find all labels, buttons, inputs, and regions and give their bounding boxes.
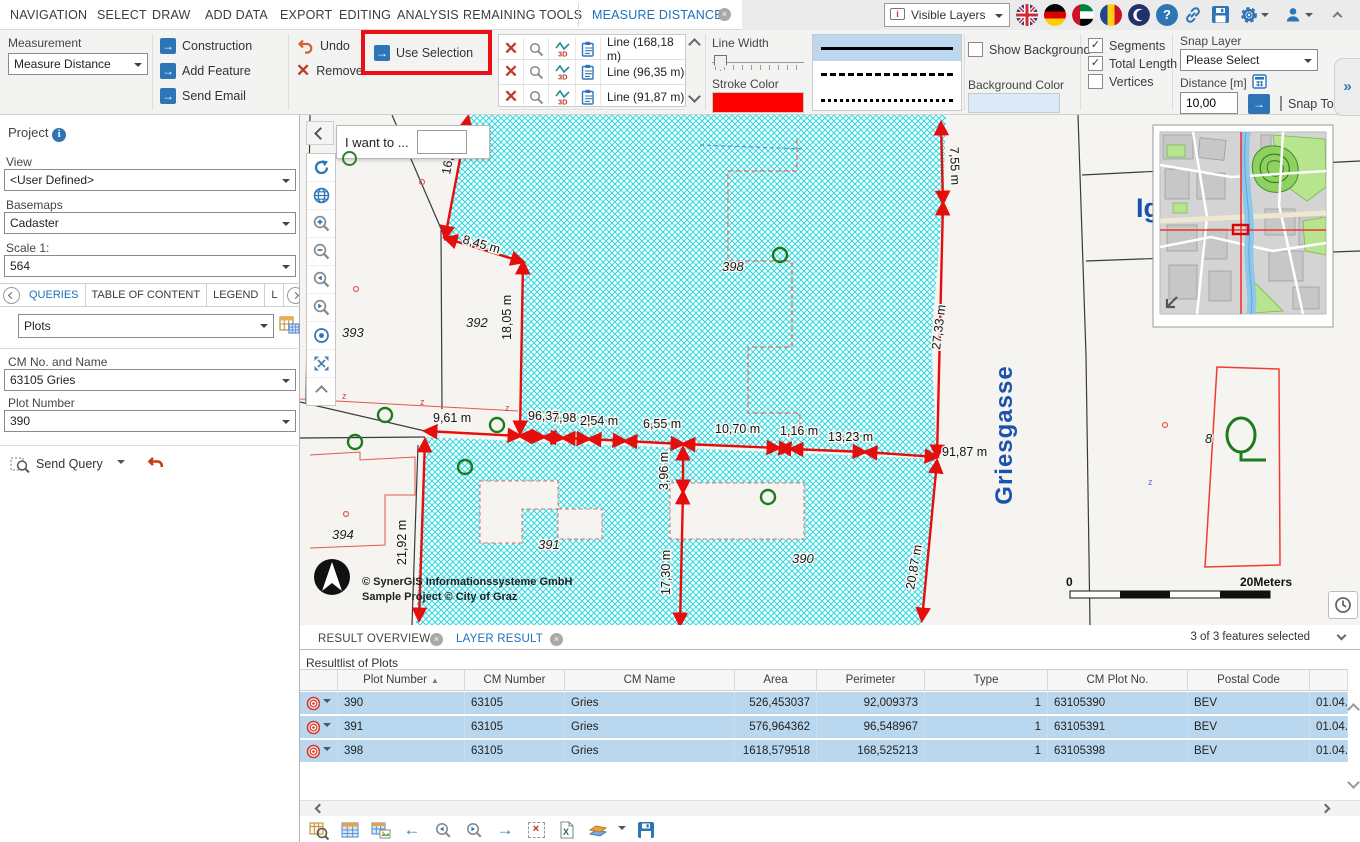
sidebar-collapse-button[interactable] xyxy=(306,121,334,145)
ribbon-separator xyxy=(705,34,706,110)
profile-3d-icon[interactable]: 3D xyxy=(549,85,576,109)
send-query-label: Send Query xyxy=(36,457,103,471)
menu-editing[interactable]: EDITING xyxy=(339,0,391,30)
cell-cm-name: Gries xyxy=(565,740,735,762)
use-selection-button[interactable]: Use Selection xyxy=(396,46,473,60)
svg-text:398: 398 xyxy=(722,259,744,274)
send-query-icon xyxy=(10,455,30,473)
checkbox-checked-icon: ✓ xyxy=(1088,56,1103,71)
view-label: View xyxy=(6,155,32,169)
column-perimeter[interactable]: Perimeter xyxy=(817,670,925,690)
measurement-type-dropdown[interactable]: Measure Distance xyxy=(8,53,148,75)
ribbon-separator xyxy=(288,34,289,110)
menu-navigation[interactable]: NAVIGATION xyxy=(10,0,87,30)
cell-postal-code: BEV xyxy=(1188,716,1310,738)
query-theme-value: Plots xyxy=(24,319,51,333)
total-length-label: Total Length xyxy=(1109,57,1177,71)
svg-text:1,16 m: 1,16 m xyxy=(780,424,818,438)
scale-value: 564 xyxy=(10,259,30,273)
add-feature-label: Add Feature xyxy=(182,64,251,78)
cell-plot-number: 390 xyxy=(338,692,465,714)
user-icon[interactable] xyxy=(1284,6,1302,27)
sidebar-tabs: QUERIES TABLE OF CONTENT LEGEND L xyxy=(0,283,300,307)
info-icon[interactable]: i xyxy=(52,128,66,142)
toolbar-collapse-icon[interactable] xyxy=(307,378,335,405)
menu-divider xyxy=(578,3,579,27)
divider xyxy=(0,348,300,349)
tree-symbol xyxy=(342,151,357,166)
undo-icon xyxy=(296,38,314,54)
tab-legend[interactable]: LEGEND xyxy=(207,284,265,306)
background-color-label: Background Color xyxy=(968,78,1064,92)
svg-text:2,54 m: 2,54 m xyxy=(580,414,618,428)
view-dropdown[interactable]: <User Defined> xyxy=(4,169,296,191)
column-plot-number[interactable]: Plot Number▲ xyxy=(338,670,465,690)
row-dropdown-icon[interactable] xyxy=(323,747,331,755)
scroll-up-icon[interactable] xyxy=(688,38,701,51)
cm-dropdown[interactable]: 63105 Gries xyxy=(4,369,296,391)
dashed-line-icon xyxy=(821,73,953,76)
copyright-line2: Sample Project © City of Graz xyxy=(362,591,518,603)
chevron-down-icon xyxy=(282,420,290,428)
scroll-right-icon[interactable] xyxy=(1321,804,1331,814)
copy-line-icon[interactable] xyxy=(576,85,601,109)
ribbon-separator xyxy=(1172,34,1173,110)
svg-text:X: X xyxy=(563,827,569,837)
table-icon[interactable] xyxy=(339,820,361,840)
blue-arrow-icon: → xyxy=(160,63,176,79)
row-actions[interactable] xyxy=(300,716,338,738)
tabs-scroll-right-icon[interactable] xyxy=(287,287,300,304)
gear-dropdown-chevron-icon[interactable] xyxy=(1261,13,1269,21)
cell-cm-number: 63105 xyxy=(465,740,565,762)
cell-date-clipped: 01.04.2 xyxy=(1310,716,1348,738)
cm-value: 63105 Gries xyxy=(10,373,75,387)
snap-layer-label: Snap Layer xyxy=(1180,34,1241,48)
table-row[interactable]: 391 63105 Gries 576,964362 96,548967 1 6… xyxy=(300,716,1348,739)
scale-dropdown[interactable]: 564 xyxy=(4,255,296,277)
measure-line-row: ✕ 3D Line (168,18 m) xyxy=(499,35,685,60)
delete-line-icon[interactable]: ✕ xyxy=(499,37,524,61)
svg-text:z: z xyxy=(505,403,510,413)
construction-button[interactable]: →Construction xyxy=(160,38,252,54)
tab-layer-result[interactable]: LAYER RESULT xyxy=(456,629,543,649)
plot-number-dropdown[interactable]: 390 xyxy=(4,410,296,432)
cell-perimeter: 168,525213 xyxy=(817,740,925,762)
stroke-color-label: Stroke Color xyxy=(712,77,779,91)
undo-button[interactable]: Undo xyxy=(296,38,350,54)
svg-text:7,55 m: 7,55 m xyxy=(947,147,962,186)
flag-uae-icon[interactable] xyxy=(1072,4,1094,26)
i-want-to-widget[interactable]: I want to ... xyxy=(336,125,490,159)
clear-selection-icon[interactable]: × xyxy=(525,820,547,840)
svg-text:13,23 m: 13,23 m xyxy=(828,430,873,444)
table-header: Plot Number▲ CM Number CM Name Area Peri… xyxy=(300,669,1348,691)
send-email-label: Send Email xyxy=(182,89,246,103)
measure-line-row: ✕ 3D Line (96,35 m) xyxy=(499,60,685,85)
previous-extent-icon[interactable] xyxy=(307,266,335,294)
cell-postal-code: BEV xyxy=(1188,740,1310,762)
flag-crescent-icon[interactable] xyxy=(1128,4,1150,26)
svg-text:10,70 m: 10,70 m xyxy=(715,422,760,436)
menu-analysis[interactable]: ANALYSIS xyxy=(397,0,459,30)
svg-text:392: 392 xyxy=(466,315,488,330)
application-window: NAVIGATION SELECT DRAW ADD DATA EXPORT E… xyxy=(0,0,1360,842)
delete-line-icon[interactable]: ✕ xyxy=(499,60,524,84)
layer-info-bubble-icon: i xyxy=(890,8,905,20)
cell-cm-name: Gries xyxy=(565,692,735,714)
cell-perimeter: 96,548967 xyxy=(817,716,925,738)
query-theme-dropdown[interactable]: Plots xyxy=(18,314,274,338)
cell-type: 1 xyxy=(925,716,1048,738)
checkbox-icon xyxy=(1280,96,1282,111)
cell-postal-code: BEV xyxy=(1188,692,1310,714)
first-record-icon[interactable]: ← xyxy=(401,820,423,840)
scale-label: Scale 1: xyxy=(6,241,49,255)
map-viewport[interactable]: z z z z xyxy=(300,115,1360,625)
overview-hill xyxy=(1252,146,1298,193)
profile-3d-icon[interactable]: 3D xyxy=(549,37,576,61)
chevron-down-icon xyxy=(995,14,1003,22)
project-header: Project i xyxy=(8,125,66,142)
ribbon-separator xyxy=(964,34,965,110)
north-arrow xyxy=(314,559,350,595)
chevron-down-icon xyxy=(260,324,268,332)
zoom-line-icon[interactable] xyxy=(524,60,549,84)
line-item-label[interactable]: Line (96,35 m) xyxy=(601,65,685,79)
header-spacer xyxy=(300,670,338,690)
extrude-dropdown-icon[interactable] xyxy=(618,826,626,834)
tab-measure-distance[interactable]: MEASURE DISTANCE xyxy=(592,0,723,30)
slider-ticks xyxy=(715,65,801,70)
scroll-left-icon[interactable] xyxy=(315,804,325,814)
distance-label: Distance [m] xyxy=(1180,76,1247,90)
measure-line-row: ✕ 3D Line (91,87 m) xyxy=(499,85,685,110)
cell-type: 1 xyxy=(925,740,1048,762)
overview-map[interactable] xyxy=(1153,125,1333,327)
cell-type: 1 xyxy=(925,692,1048,714)
next-extent-icon[interactable] xyxy=(307,294,335,322)
snap-layer-dropdown[interactable]: Please Select xyxy=(1180,49,1318,71)
line-item-label[interactable]: Line (91,87 m) xyxy=(601,90,685,104)
send-query-button[interactable]: Send Query xyxy=(10,455,125,473)
svg-text:z: z xyxy=(1148,477,1153,487)
tab-queries[interactable]: QUERIES xyxy=(23,284,86,306)
help-icon[interactable]: ? xyxy=(1156,4,1178,26)
calculator-icon[interactable] xyxy=(1252,74,1267,92)
gear-icon[interactable] xyxy=(1240,6,1258,27)
sidebar: Project i View <User Defined> Basemaps C… xyxy=(0,115,300,842)
svg-text:3,96 m: 3,96 m xyxy=(657,452,671,490)
svg-text:17,30 m: 17,30 m xyxy=(659,550,673,595)
column-area[interactable]: Area xyxy=(735,670,817,690)
checkbox-checked-icon: ✓ xyxy=(1088,38,1103,53)
tab-result-overview[interactable]: RESULT OVERVIEW xyxy=(318,629,430,649)
last-record-icon[interactable]: → xyxy=(494,820,516,840)
plot-number-label: Plot Number xyxy=(8,396,75,410)
row-actions[interactable] xyxy=(300,692,338,714)
column-type[interactable]: Type xyxy=(925,670,1048,690)
svg-text:z: z xyxy=(420,397,425,407)
total-length-checkbox[interactable]: ✓Total Length xyxy=(1088,56,1177,71)
cell-plot-number: 398 xyxy=(338,740,465,762)
tab-clipped[interactable]: L xyxy=(265,284,284,306)
table-vertical-scrollbar[interactable] xyxy=(1346,671,1360,815)
line-width-slider[interactable] xyxy=(712,54,804,72)
target-icon[interactable] xyxy=(306,744,320,759)
cell-area: 1618,579518 xyxy=(735,740,817,762)
full-extent-icon[interactable] xyxy=(307,350,335,378)
svg-text:6,55 m: 6,55 m xyxy=(643,417,681,431)
svg-text:20Meters: 20Meters xyxy=(1240,575,1292,589)
zoom-line-icon[interactable] xyxy=(524,85,549,109)
link-icon[interactable] xyxy=(1184,6,1202,27)
cell-area: 576,964362 xyxy=(735,716,817,738)
center-map-icon[interactable] xyxy=(307,322,335,350)
close-icon[interactable]: × xyxy=(718,8,731,21)
cell-plot-number: 391 xyxy=(338,716,465,738)
zoom-next-icon[interactable] xyxy=(463,820,485,840)
results-tabs: RESULT OVERVIEW × LAYER RESULT × 3 of 3 … xyxy=(300,625,1360,650)
cell-cm-plot-no: 63105398 xyxy=(1048,740,1188,762)
ribbon: Measurement Measure Distance →Constructi… xyxy=(0,30,1360,115)
divider xyxy=(0,445,300,446)
checkbox-icon xyxy=(968,42,983,57)
sort-asc-icon: ▲ xyxy=(431,676,439,685)
row-dropdown-icon[interactable] xyxy=(323,699,331,707)
reset-query-icon[interactable] xyxy=(146,455,165,475)
table-view-icon[interactable] xyxy=(370,820,392,840)
svg-text:393: 393 xyxy=(342,325,364,340)
target-icon[interactable] xyxy=(306,720,320,735)
row-dropdown-icon[interactable] xyxy=(323,723,331,731)
blue-arrow-icon: → xyxy=(374,45,390,61)
profile-3d-icon[interactable]: 3D xyxy=(549,60,576,84)
svg-text:0: 0 xyxy=(1066,575,1073,589)
map-toolbar xyxy=(306,153,336,406)
svg-text:390: 390 xyxy=(792,551,814,566)
segments-label: Segments xyxy=(1109,39,1165,53)
checkbox-icon xyxy=(1088,74,1103,89)
vertices-checkbox[interactable]: Vertices xyxy=(1088,74,1153,89)
column-cm-name[interactable]: CM Name xyxy=(565,670,735,690)
results-panel: RESULT OVERVIEW × LAYER RESULT × 3 of 3 … xyxy=(300,625,1360,842)
svg-text:391: 391 xyxy=(538,537,560,552)
panel-collapse-icon[interactable] xyxy=(1337,631,1347,641)
chevron-down-icon xyxy=(1304,59,1312,67)
remove-all-icon: ✕ xyxy=(296,64,310,78)
delete-line-icon[interactable]: ✕ xyxy=(499,85,524,109)
add-feature-button[interactable]: →Add Feature xyxy=(160,63,251,79)
use-selection-highlight: → Use Selection xyxy=(361,30,492,75)
chevron-down-icon xyxy=(282,222,290,230)
user-dropdown-chevron-icon[interactable] xyxy=(1305,13,1313,21)
export-excel-icon[interactable]: X xyxy=(556,820,578,840)
globe-icon[interactable] xyxy=(307,182,335,210)
table-row[interactable]: 390 63105 Gries 526,453037 92,009373 1 6… xyxy=(300,692,1348,715)
send-query-dropdown-icon[interactable] xyxy=(117,460,125,468)
send-email-button[interactable]: →Send Email xyxy=(160,88,246,104)
zoom-to-results-icon[interactable] xyxy=(308,820,330,840)
show-background-label: Show Background xyxy=(989,43,1090,57)
close-icon[interactable]: × xyxy=(430,633,443,646)
ribbon-separator xyxy=(152,34,153,110)
cell-cm-plot-no: 63105390 xyxy=(1048,692,1188,714)
svg-text:91,87 m: 91,87 m xyxy=(942,445,987,459)
visible-layers-label: Visible Layers xyxy=(911,8,985,22)
show-background-checkbox[interactable]: Show Background xyxy=(968,42,1090,57)
plot-number-value: 390 xyxy=(10,414,30,428)
cell-date-clipped: 01.04.2 xyxy=(1310,740,1348,762)
copy-line-icon[interactable] xyxy=(576,60,601,84)
cell-cm-name: Gries xyxy=(565,716,735,738)
column-clipped xyxy=(1310,670,1348,690)
map-canvas[interactable]: z z z z xyxy=(300,115,1360,625)
blue-arrow-icon: → xyxy=(160,88,176,104)
copyright-line1: © SynerGIS Informationssysteme GmbH xyxy=(362,576,572,588)
view-value: <User Defined> xyxy=(10,173,94,187)
street-label-griesgasse: Griesgasse xyxy=(991,365,1018,504)
apply-distance-button[interactable]: → xyxy=(1248,94,1270,114)
zoom-out-icon[interactable] xyxy=(307,238,335,266)
svg-text:3D: 3D xyxy=(558,97,568,106)
cell-cm-plot-no: 63105391 xyxy=(1048,716,1188,738)
measure-lines-list: ✕ 3D Line (168,18 m) ✕ 3D Line (96,35 m)… xyxy=(498,34,686,107)
column-postal-code[interactable]: Postal Code xyxy=(1188,670,1310,690)
ribbon-expand-button[interactable]: » xyxy=(1334,58,1360,116)
svg-text:394: 394 xyxy=(332,527,354,542)
column-cm-plot-no[interactable]: CM Plot No. xyxy=(1048,670,1188,690)
vertices-label: Vertices xyxy=(1109,75,1153,89)
menu-add-data[interactable]: ADD DATA xyxy=(205,0,268,30)
row-actions[interactable] xyxy=(300,740,338,762)
chevron-down-icon xyxy=(134,63,142,71)
cell-date-clipped: 01.04.2 xyxy=(1310,692,1348,714)
menu-select[interactable]: SELECT xyxy=(97,0,147,30)
i-want-to-label: I want to ... xyxy=(345,135,409,150)
undo-label: Undo xyxy=(320,39,350,53)
close-icon[interactable]: × xyxy=(550,633,563,646)
segments-checkbox[interactable]: ✓Segments xyxy=(1088,38,1165,53)
column-cm-number[interactable]: CM Number xyxy=(465,670,565,690)
result-list-title: Resultlist of Plots xyxy=(306,656,398,670)
menu-export[interactable]: EXPORT xyxy=(280,0,332,30)
lines-list-scrollbar xyxy=(687,34,702,107)
construction-label: Construction xyxy=(182,39,252,53)
blue-arrow-icon: → xyxy=(160,38,176,54)
scroll-up-icon[interactable] xyxy=(1347,703,1360,716)
line-width-label: Line Width xyxy=(712,36,769,50)
tab-table-of-content[interactable]: TABLE OF CONTENT xyxy=(86,284,208,306)
svg-text:z: z xyxy=(342,391,347,401)
target-icon[interactable] xyxy=(306,696,320,711)
chevron-down-icon xyxy=(282,265,290,273)
table-row[interactable]: 398 63105 Gries 1618,579518 168,525213 1… xyxy=(300,740,1348,763)
cm-label: CM No. and Name xyxy=(8,355,107,369)
chevron-down-icon xyxy=(282,179,290,187)
chevron-down-icon xyxy=(282,379,290,387)
save-session-icon[interactable] xyxy=(1212,6,1230,27)
line-item-label[interactable]: Line (168,18 m) xyxy=(601,35,685,63)
background-color-swatch[interactable] xyxy=(968,93,1060,113)
rotate-icon[interactable] xyxy=(307,154,335,182)
extrude-3d-icon[interactable] xyxy=(587,820,609,840)
svg-text:3D: 3D xyxy=(558,72,568,81)
cell-cm-number: 63105 xyxy=(465,692,565,714)
zoom-line-icon[interactable] xyxy=(524,37,549,61)
menu-remaining-tools[interactable]: REMAINING TOOLS xyxy=(463,0,582,30)
basemaps-dropdown[interactable]: Cadaster xyxy=(4,212,296,234)
scroll-down-icon[interactable] xyxy=(688,90,701,103)
svg-text:8: 8 xyxy=(1205,431,1213,446)
result-toolbar: ← → × X xyxy=(300,818,1360,842)
project-label: Project xyxy=(8,125,48,140)
cell-cm-number: 63105 xyxy=(465,716,565,738)
query-definition-icon[interactable] xyxy=(279,315,300,338)
zoom-previous-icon[interactable] xyxy=(432,820,454,840)
solid-line-icon xyxy=(821,47,953,50)
svg-text:3D: 3D xyxy=(558,49,568,58)
flag-germany-icon[interactable] xyxy=(1044,4,1066,26)
cell-perimeter: 92,009373 xyxy=(817,692,925,714)
i-want-to-input[interactable] xyxy=(417,130,467,154)
line-style-solid[interactable] xyxy=(813,35,961,61)
cell-area: 526,453037 xyxy=(735,692,817,714)
svg-text:9,61 m: 9,61 m xyxy=(433,411,471,425)
copy-line-icon[interactable] xyxy=(576,37,601,61)
basemaps-label: Basemaps xyxy=(6,198,63,212)
basemaps-value: Cadaster xyxy=(10,216,59,230)
table-horizontal-scrollbar[interactable] xyxy=(300,800,1360,816)
svg-text:18,05 m: 18,05 m xyxy=(500,295,514,340)
flag-romania-icon[interactable] xyxy=(1100,4,1122,26)
tabs-scroll-left-icon[interactable] xyxy=(3,287,20,304)
distance-input[interactable] xyxy=(1180,92,1238,114)
line-style-dotted[interactable] xyxy=(813,87,961,111)
menu-draw[interactable]: DRAW xyxy=(152,0,191,30)
history-clock-button[interactable] xyxy=(1328,591,1358,619)
stroke-color-swatch[interactable] xyxy=(712,92,804,113)
line-style-dashed[interactable] xyxy=(813,61,961,87)
scroll-down-icon[interactable] xyxy=(1347,776,1360,789)
svg-text:21,92 m: 21,92 m xyxy=(395,520,409,565)
flag-uk-icon[interactable] xyxy=(1016,4,1038,26)
menubar: NAVIGATION SELECT DRAW ADD DATA EXPORT E… xyxy=(0,0,1360,30)
measurement-group-label: Measurement xyxy=(8,36,81,50)
selection-info: 3 of 3 features selected xyxy=(1130,631,1310,643)
dotted-line-icon xyxy=(821,99,953,102)
line-style-list xyxy=(812,34,962,111)
save-result-icon[interactable] xyxy=(635,820,657,840)
measurement-type-value: Measure Distance xyxy=(14,57,111,71)
zoom-in-icon[interactable] xyxy=(307,210,335,238)
snap-layer-value: Please Select xyxy=(1186,53,1259,67)
